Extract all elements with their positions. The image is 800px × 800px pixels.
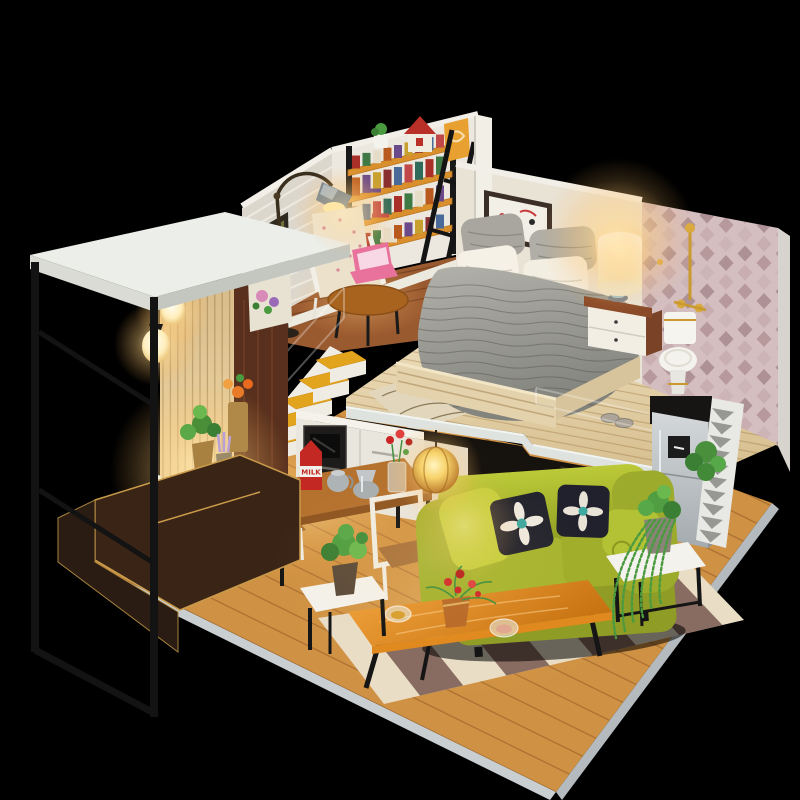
book: [436, 135, 444, 148]
book: [352, 156, 360, 169]
toilet-base: [670, 370, 686, 394]
book: [405, 193, 413, 209]
frame-post: [31, 262, 39, 652]
book: [405, 164, 413, 182]
book: [415, 191, 423, 207]
book: [394, 145, 402, 158]
table-leg: [698, 564, 700, 606]
decor-flower: [269, 297, 279, 307]
red-flower: [386, 436, 394, 444]
decor-leaf: [253, 303, 260, 310]
book: [426, 188, 434, 204]
glow-overlay: [304, 174, 384, 254]
orange-flower: [223, 379, 233, 389]
glow-overlay: [556, 180, 676, 300]
orange-flower: [232, 386, 244, 398]
plant-leaf: [236, 374, 244, 382]
book: [394, 167, 402, 185]
book: [436, 215, 444, 229]
armchair-leg: [314, 298, 316, 318]
bushy-plant: [180, 424, 196, 440]
decor-flower: [256, 290, 268, 302]
drawer-knob: [614, 320, 618, 324]
pot-plant-leaves: [371, 128, 379, 136]
decor-leaf: [264, 306, 272, 314]
jug-lid: [331, 470, 345, 476]
book: [373, 150, 381, 163]
book: [384, 148, 392, 161]
book: [426, 159, 434, 177]
book: [384, 170, 392, 188]
house-ornament-window: [416, 138, 423, 146]
milk-carton-label: MILK: [301, 469, 321, 477]
red-flower: [396, 430, 405, 439]
floor-lamp-joint: [274, 193, 281, 200]
drawer-knob: [614, 338, 618, 342]
sofa-leg: [474, 647, 483, 658]
orange-flower: [243, 379, 253, 389]
book: [415, 220, 423, 234]
dollhouse-photo: MILK: [0, 0, 800, 800]
toilet-tank: [664, 312, 696, 344]
book: [363, 153, 371, 166]
bushy-plant: [193, 405, 207, 419]
glow-overlay: [270, 470, 590, 650]
art-mark: [529, 219, 535, 225]
white-plant-pot: [374, 134, 388, 148]
book: [405, 222, 413, 236]
book: [415, 162, 423, 180]
plant-leaves: [697, 463, 715, 481]
frame-post: [150, 297, 158, 717]
table-top: [328, 285, 408, 315]
book: [394, 225, 402, 239]
right-wall-edge: [778, 228, 790, 472]
tall-gold-pot: [228, 402, 248, 452]
